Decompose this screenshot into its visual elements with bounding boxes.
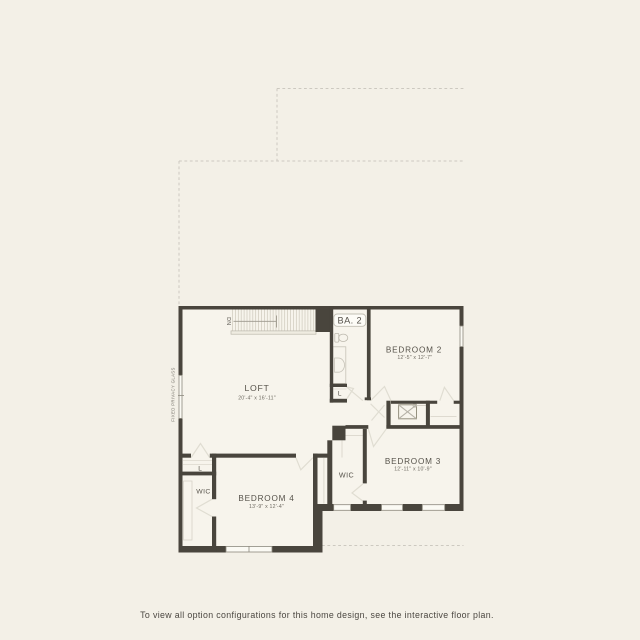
svg-text:BA. 2: BA. 2 [338, 316, 362, 326]
svg-text:LOFT: LOFT [244, 383, 269, 393]
svg-text:20'-4" x 16'-11": 20'-4" x 16'-11" [238, 396, 276, 402]
svg-text:L: L [198, 466, 202, 473]
svg-text:DN: DN [225, 317, 231, 325]
svg-text:13'-9" x 12'-4": 13'-9" x 12'-4" [249, 504, 284, 510]
svg-text:12'-11" x 10'-9": 12'-11" x 10'-9" [394, 467, 432, 473]
svg-text:12'-5" x 12'-7": 12'-5" x 12'-7" [397, 355, 432, 361]
svg-text:FIXED PRIVACY GLASS: FIXED PRIVACY GLASS [171, 367, 176, 422]
svg-text:WIC: WIC [339, 471, 354, 480]
svg-text:To view all option configurati: To view all option configurations for th… [140, 610, 494, 620]
svg-text:WIC: WIC [196, 489, 210, 496]
svg-text:BEDROOM 4: BEDROOM 4 [238, 494, 294, 503]
svg-text:BEDROOM 3: BEDROOM 3 [385, 457, 441, 466]
svg-text:BEDROOM 2: BEDROOM 2 [386, 345, 442, 354]
svg-text:L: L [338, 391, 342, 398]
